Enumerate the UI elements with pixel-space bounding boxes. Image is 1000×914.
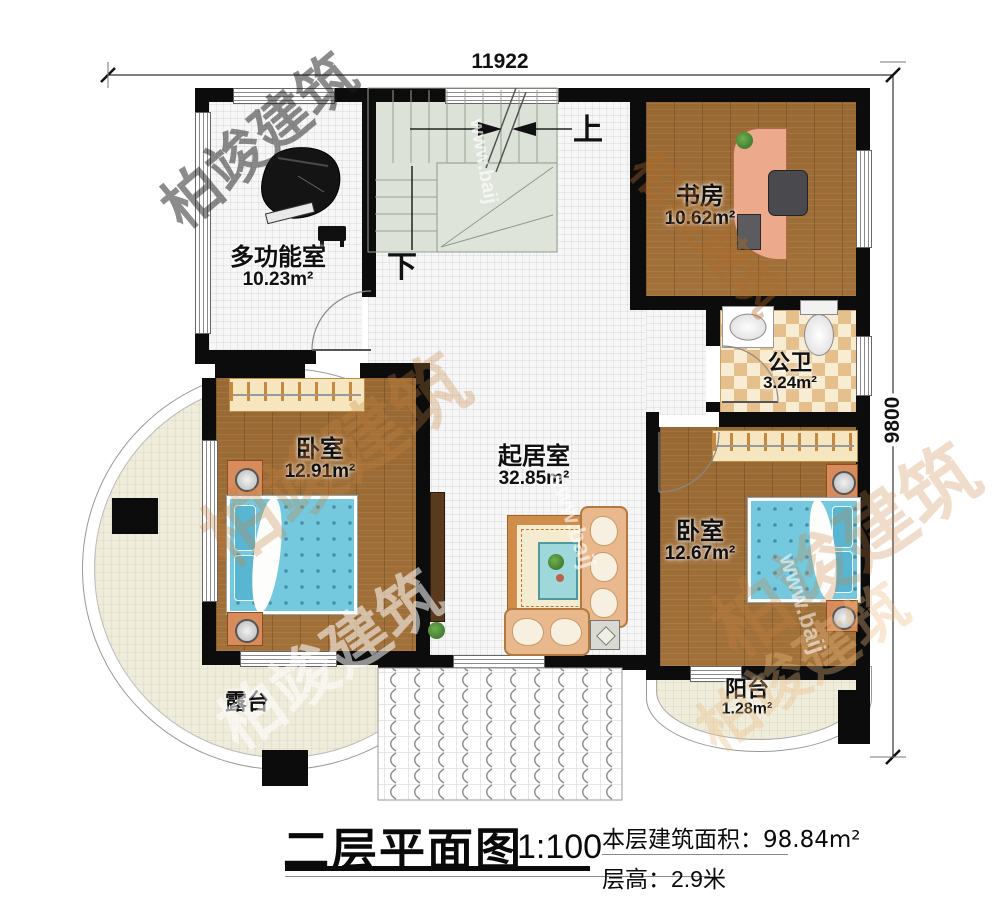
info-divider: [602, 854, 788, 855]
scale-label: 1:100: [517, 828, 602, 867]
floor-height-line: 层高：2.9米: [602, 860, 726, 894]
stairs-up-label: 上: [573, 105, 603, 149]
wall: [646, 666, 690, 680]
hall-patch-floor: [646, 310, 706, 415]
nightstand: [826, 464, 858, 498]
computer-tower: [737, 214, 761, 250]
office-chair: [768, 170, 808, 216]
wardrobe: [712, 430, 858, 462]
floor-plan: 11922 9800 上 下 多功能室 10.23m² 书房 10.62m² 公…: [0, 0, 1000, 914]
wall: [215, 363, 305, 378]
room-label-bath: 公卫 3.24m²: [763, 351, 817, 393]
wall: [195, 350, 316, 364]
window: [240, 651, 337, 667]
double-bed: [748, 498, 860, 602]
plant: [736, 132, 753, 149]
window: [195, 112, 211, 334]
nightstand: [826, 600, 858, 632]
wall: [706, 310, 720, 346]
wall: [646, 412, 659, 427]
room-label-bedroom-right: 卧室 12.67m²: [665, 519, 736, 565]
room-label-terrace: 露台: [225, 690, 269, 713]
window: [856, 336, 872, 396]
wardrobe: [229, 378, 365, 412]
wall: [646, 427, 660, 666]
sofa: [504, 608, 590, 656]
room-label-bedroom-left: 卧室 12.91m²: [285, 437, 356, 483]
window: [856, 150, 872, 248]
nightstand: [227, 460, 263, 496]
wall: [360, 363, 430, 378]
window: [453, 655, 545, 672]
floor-area-line: 本层建筑面积：98.84m²: [602, 820, 860, 854]
nightstand: [227, 612, 263, 646]
wall: [719, 412, 870, 427]
grand-piano-icon: [238, 136, 358, 256]
wall: [416, 378, 430, 665]
terrace-pier: [112, 498, 158, 534]
room-label-study: 书房 10.62m²: [665, 184, 736, 230]
room-label-living: 起居室 32.85m²: [498, 444, 570, 490]
window: [233, 88, 335, 104]
tv-cabinet: [430, 492, 445, 622]
wall: [630, 102, 646, 310]
dimension-right: 9800: [881, 394, 905, 447]
room-label-balcony: 阳台 1.28m²: [722, 678, 773, 719]
stairs-down-label: 下: [387, 242, 417, 286]
stair-floor: [368, 102, 557, 252]
balcony-pier: [838, 690, 870, 744]
side-table: [590, 620, 620, 650]
terrace-pier: [262, 750, 308, 786]
window: [445, 88, 559, 104]
double-bed: [227, 496, 357, 614]
coffee-table: [538, 542, 578, 600]
sink: [722, 306, 774, 348]
room-label-multi: 多功能室 10.23m²: [230, 245, 326, 291]
wall: [378, 655, 453, 670]
wall: [543, 655, 646, 670]
plant: [428, 622, 445, 639]
window: [202, 440, 218, 602]
dimension-top: 11922: [468, 50, 531, 74]
wall: [362, 102, 376, 297]
title-underline-thick: [285, 866, 590, 871]
wall: [706, 402, 720, 412]
